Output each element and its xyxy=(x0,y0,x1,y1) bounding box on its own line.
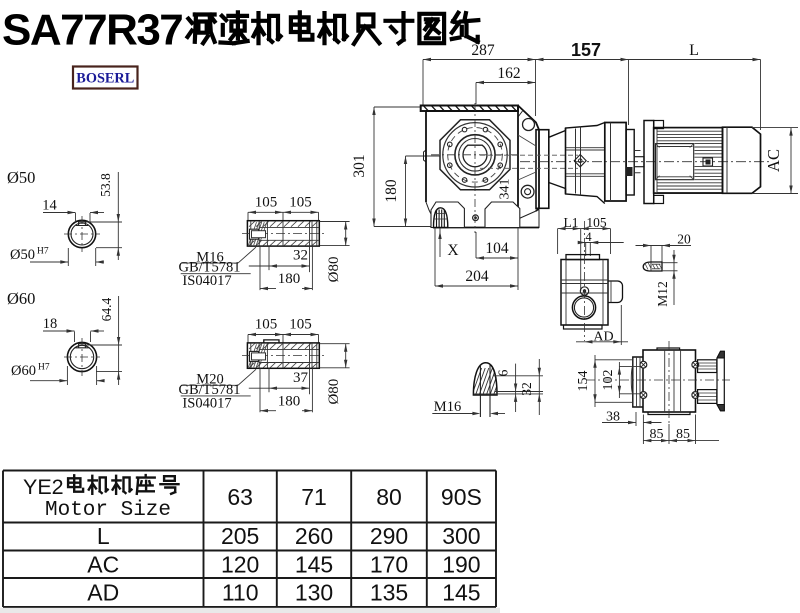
svg-text:170: 170 xyxy=(370,551,408,577)
svg-text:205: 205 xyxy=(221,523,259,549)
svg-text:Ø60: Ø60 xyxy=(7,289,35,308)
svg-text:260: 260 xyxy=(295,523,333,549)
svg-text:Ø50: Ø50 xyxy=(10,247,35,263)
svg-text:M16: M16 xyxy=(434,399,461,415)
svg-text:300: 300 xyxy=(442,523,480,549)
svg-text:157: 157 xyxy=(571,40,601,60)
svg-text:71: 71 xyxy=(301,484,327,510)
svg-text:341: 341 xyxy=(498,179,513,200)
svg-text:YE2: YE2 xyxy=(23,475,64,499)
svg-text:105: 105 xyxy=(255,317,278,333)
svg-text:63: 63 xyxy=(227,484,253,510)
svg-text:4: 4 xyxy=(585,230,592,244)
svg-text:20: 20 xyxy=(677,232,691,247)
svg-text:120: 120 xyxy=(221,551,259,577)
svg-text:AD: AD xyxy=(87,580,119,606)
svg-text:180: 180 xyxy=(383,179,400,203)
svg-text:Ø60: Ø60 xyxy=(11,363,36,379)
svg-text:BOSERL: BOSERL xyxy=(76,71,134,87)
svg-text:SA77R37: SA77R37 xyxy=(2,6,182,55)
svg-text:Ø80: Ø80 xyxy=(326,379,342,405)
svg-text:32: 32 xyxy=(519,382,534,396)
svg-text:80: 80 xyxy=(376,484,402,510)
svg-text:105: 105 xyxy=(289,195,312,211)
svg-text:Motor Size: Motor Size xyxy=(45,499,171,522)
svg-text:AD: AD xyxy=(593,330,613,345)
svg-text:14: 14 xyxy=(42,198,57,214)
svg-text:290: 290 xyxy=(370,523,408,549)
svg-text:37: 37 xyxy=(293,370,309,386)
svg-text:18: 18 xyxy=(43,316,58,332)
svg-text:H7: H7 xyxy=(37,247,49,257)
svg-text:X: X xyxy=(447,242,458,259)
svg-text:IS04017: IS04017 xyxy=(182,395,231,411)
svg-text:H7: H7 xyxy=(38,363,50,373)
svg-text:L: L xyxy=(689,42,699,59)
svg-text:180: 180 xyxy=(278,393,301,409)
svg-text:Ø80: Ø80 xyxy=(326,256,342,282)
svg-text:145: 145 xyxy=(295,551,333,577)
svg-text:6: 6 xyxy=(496,369,511,376)
svg-text:204: 204 xyxy=(465,268,489,285)
svg-text:162: 162 xyxy=(497,65,520,82)
svg-text:M12: M12 xyxy=(655,281,670,307)
svg-text:287: 287 xyxy=(471,42,495,59)
svg-text:180: 180 xyxy=(278,271,301,287)
svg-text:53.8: 53.8 xyxy=(98,173,113,197)
svg-text:AC: AC xyxy=(87,551,119,577)
svg-text:90S: 90S xyxy=(441,484,482,510)
svg-text:IS04017: IS04017 xyxy=(182,273,231,289)
svg-text:190: 190 xyxy=(442,551,480,577)
svg-text:32: 32 xyxy=(293,248,308,264)
svg-text:105: 105 xyxy=(255,195,278,211)
svg-text:102: 102 xyxy=(601,370,616,391)
svg-text:110: 110 xyxy=(222,580,259,606)
svg-text:154: 154 xyxy=(576,371,591,392)
svg-text:Ø50: Ø50 xyxy=(7,168,35,187)
svg-text:135: 135 xyxy=(370,580,408,606)
svg-text:130: 130 xyxy=(295,580,333,606)
svg-text:AC: AC xyxy=(764,149,783,172)
svg-text:145: 145 xyxy=(442,580,480,606)
svg-text:L: L xyxy=(97,523,110,549)
svg-text:64.4: 64.4 xyxy=(99,297,114,321)
svg-text:301: 301 xyxy=(351,154,368,177)
svg-text:105: 105 xyxy=(289,317,312,333)
svg-text:104: 104 xyxy=(485,240,509,257)
